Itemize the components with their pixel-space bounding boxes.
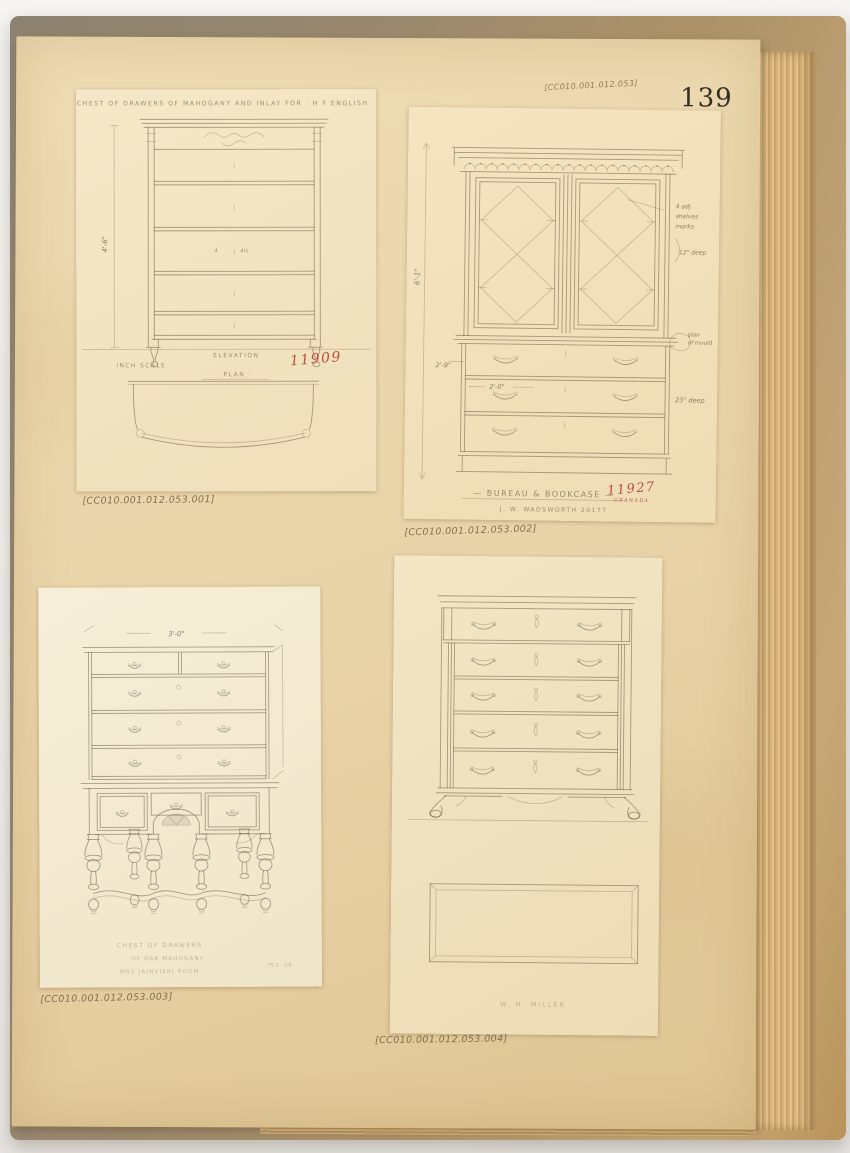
caption-scale-note: FS 2 · 1/8 bbox=[268, 963, 292, 969]
lattice-left-door bbox=[478, 186, 556, 323]
cornice bbox=[452, 147, 684, 174]
tall-chest-elevation bbox=[408, 595, 650, 821]
scrapbook-photo: 139 [CC010.001.012.053] — CHEST OF DRAWE… bbox=[0, 0, 850, 1153]
note-23-deep: 23" deep bbox=[675, 396, 705, 404]
drawing-sheet-chest-mahogany: — CHEST OF DRAWERS OF MAHOGANY AND INLAY… bbox=[76, 89, 376, 491]
catalog-label-1: [CC010.001.012.053.001] bbox=[82, 494, 215, 507]
dim-3-0: 3'-0" bbox=[168, 630, 185, 638]
chest-mahogany-drawing: — CHEST OF DRAWERS OF MAHOGANY AND INLAY… bbox=[76, 89, 376, 491]
note-shelves-3: marks bbox=[675, 223, 694, 230]
pencil-note-a: 4 bbox=[214, 248, 217, 254]
dim-4-6: 4'-6" bbox=[101, 236, 109, 253]
waist-moulding bbox=[454, 330, 691, 351]
dim-2-9: 2'-9" bbox=[435, 361, 451, 369]
caption-line-1: CHEST OF DRAWERS bbox=[117, 942, 203, 949]
drawing2-caption: — BUREAU & BOOKCASE — 11927 GRANADA J. W… bbox=[462, 477, 657, 515]
turned-legs bbox=[85, 829, 274, 914]
catalog-label-bureau-header: [CC010.001.012.053] bbox=[544, 79, 638, 92]
right-margin-notes: 4 adj shelves marks 12" deep plan of mou… bbox=[673, 203, 714, 404]
drawing4-caption: W. H. MILLER bbox=[500, 1000, 566, 1009]
glazed-doors bbox=[464, 171, 670, 338]
label-elevation: ELEVATION bbox=[213, 352, 259, 359]
maker-name: J. W. WADSWORTH 20177 bbox=[499, 506, 608, 514]
stand bbox=[81, 783, 279, 844]
red-number-11909: 11909 bbox=[289, 349, 342, 370]
label-inch-scale: INCH SCALE bbox=[116, 363, 166, 369]
tall-chest-drawing: W. H. MILLER bbox=[390, 555, 663, 1036]
height-dimension: 4'-6" bbox=[101, 125, 118, 347]
width-dimension: 3'-0" bbox=[126, 630, 226, 638]
drawing-sheet-bureau-bookcase: 6'-1" bbox=[403, 107, 720, 523]
drawing-sheet-chest-on-stand: 3'-0" bbox=[38, 586, 322, 987]
catalog-label-2: [CC010.001.012.053.002] bbox=[404, 523, 537, 538]
note-12-deep: 12" deep bbox=[679, 249, 707, 256]
drawer-dimension: 2'-0" bbox=[469, 383, 533, 392]
album-page: 139 [CC010.001.012.053] — CHEST OF DRAWE… bbox=[12, 36, 761, 1129]
upper-chest bbox=[82, 645, 283, 780]
bureau-bookcase-drawing: 6'-1" bbox=[403, 107, 720, 523]
caption-line-3: MRS JAINVIERI ROOM bbox=[120, 969, 200, 975]
catalog-label-3: [CC010.001.012.053.003] bbox=[40, 991, 173, 1005]
dim-6-1: 6'-1" bbox=[414, 269, 422, 286]
label-plan: · PLAN · bbox=[217, 371, 252, 378]
pencil-note-b: 4½ bbox=[240, 247, 248, 254]
note-shelves-2: shelves bbox=[675, 213, 698, 220]
red-number-11927: 11927 bbox=[607, 480, 657, 499]
dim-2-0: 2'-0" bbox=[489, 383, 505, 391]
note-plan-2: of mould bbox=[688, 340, 713, 346]
bureau-subtitle: GRANADA bbox=[614, 497, 649, 503]
caption-line-2: OF OAK MAHOGANY bbox=[131, 956, 204, 962]
lattice-right-door bbox=[578, 187, 656, 324]
drawing-sheet-tall-chest: W. H. MILLER bbox=[390, 555, 663, 1036]
tall-chest-plan bbox=[429, 884, 638, 964]
bureau-title: — BUREAU & BOOKCASE — bbox=[473, 489, 614, 500]
catalog-label-4: [CC010.001.012.053.004] bbox=[375, 1033, 508, 1046]
height-dimension: 6'-1" bbox=[411, 143, 429, 479]
drawing1-title: — CHEST OF DRAWERS OF MAHOGANY AND INLAY… bbox=[76, 100, 376, 107]
note-plan-1: plan bbox=[687, 332, 700, 338]
note-leader-line bbox=[628, 200, 664, 210]
chest-on-stand-drawing: 3'-0" bbox=[38, 586, 322, 987]
chest-elevation: 4 4½ 4'-6" bbox=[101, 119, 328, 367]
note-shelves-1: 4 adj bbox=[676, 203, 691, 210]
page-number: 139 bbox=[680, 83, 733, 113]
chest-lower-section bbox=[448, 343, 674, 474]
cabriole-legs bbox=[430, 796, 641, 820]
drawing3-caption: CHEST OF DRAWERS OF OAK MAHOGANY MRS JAI… bbox=[117, 942, 292, 976]
chest-plan bbox=[128, 381, 318, 447]
